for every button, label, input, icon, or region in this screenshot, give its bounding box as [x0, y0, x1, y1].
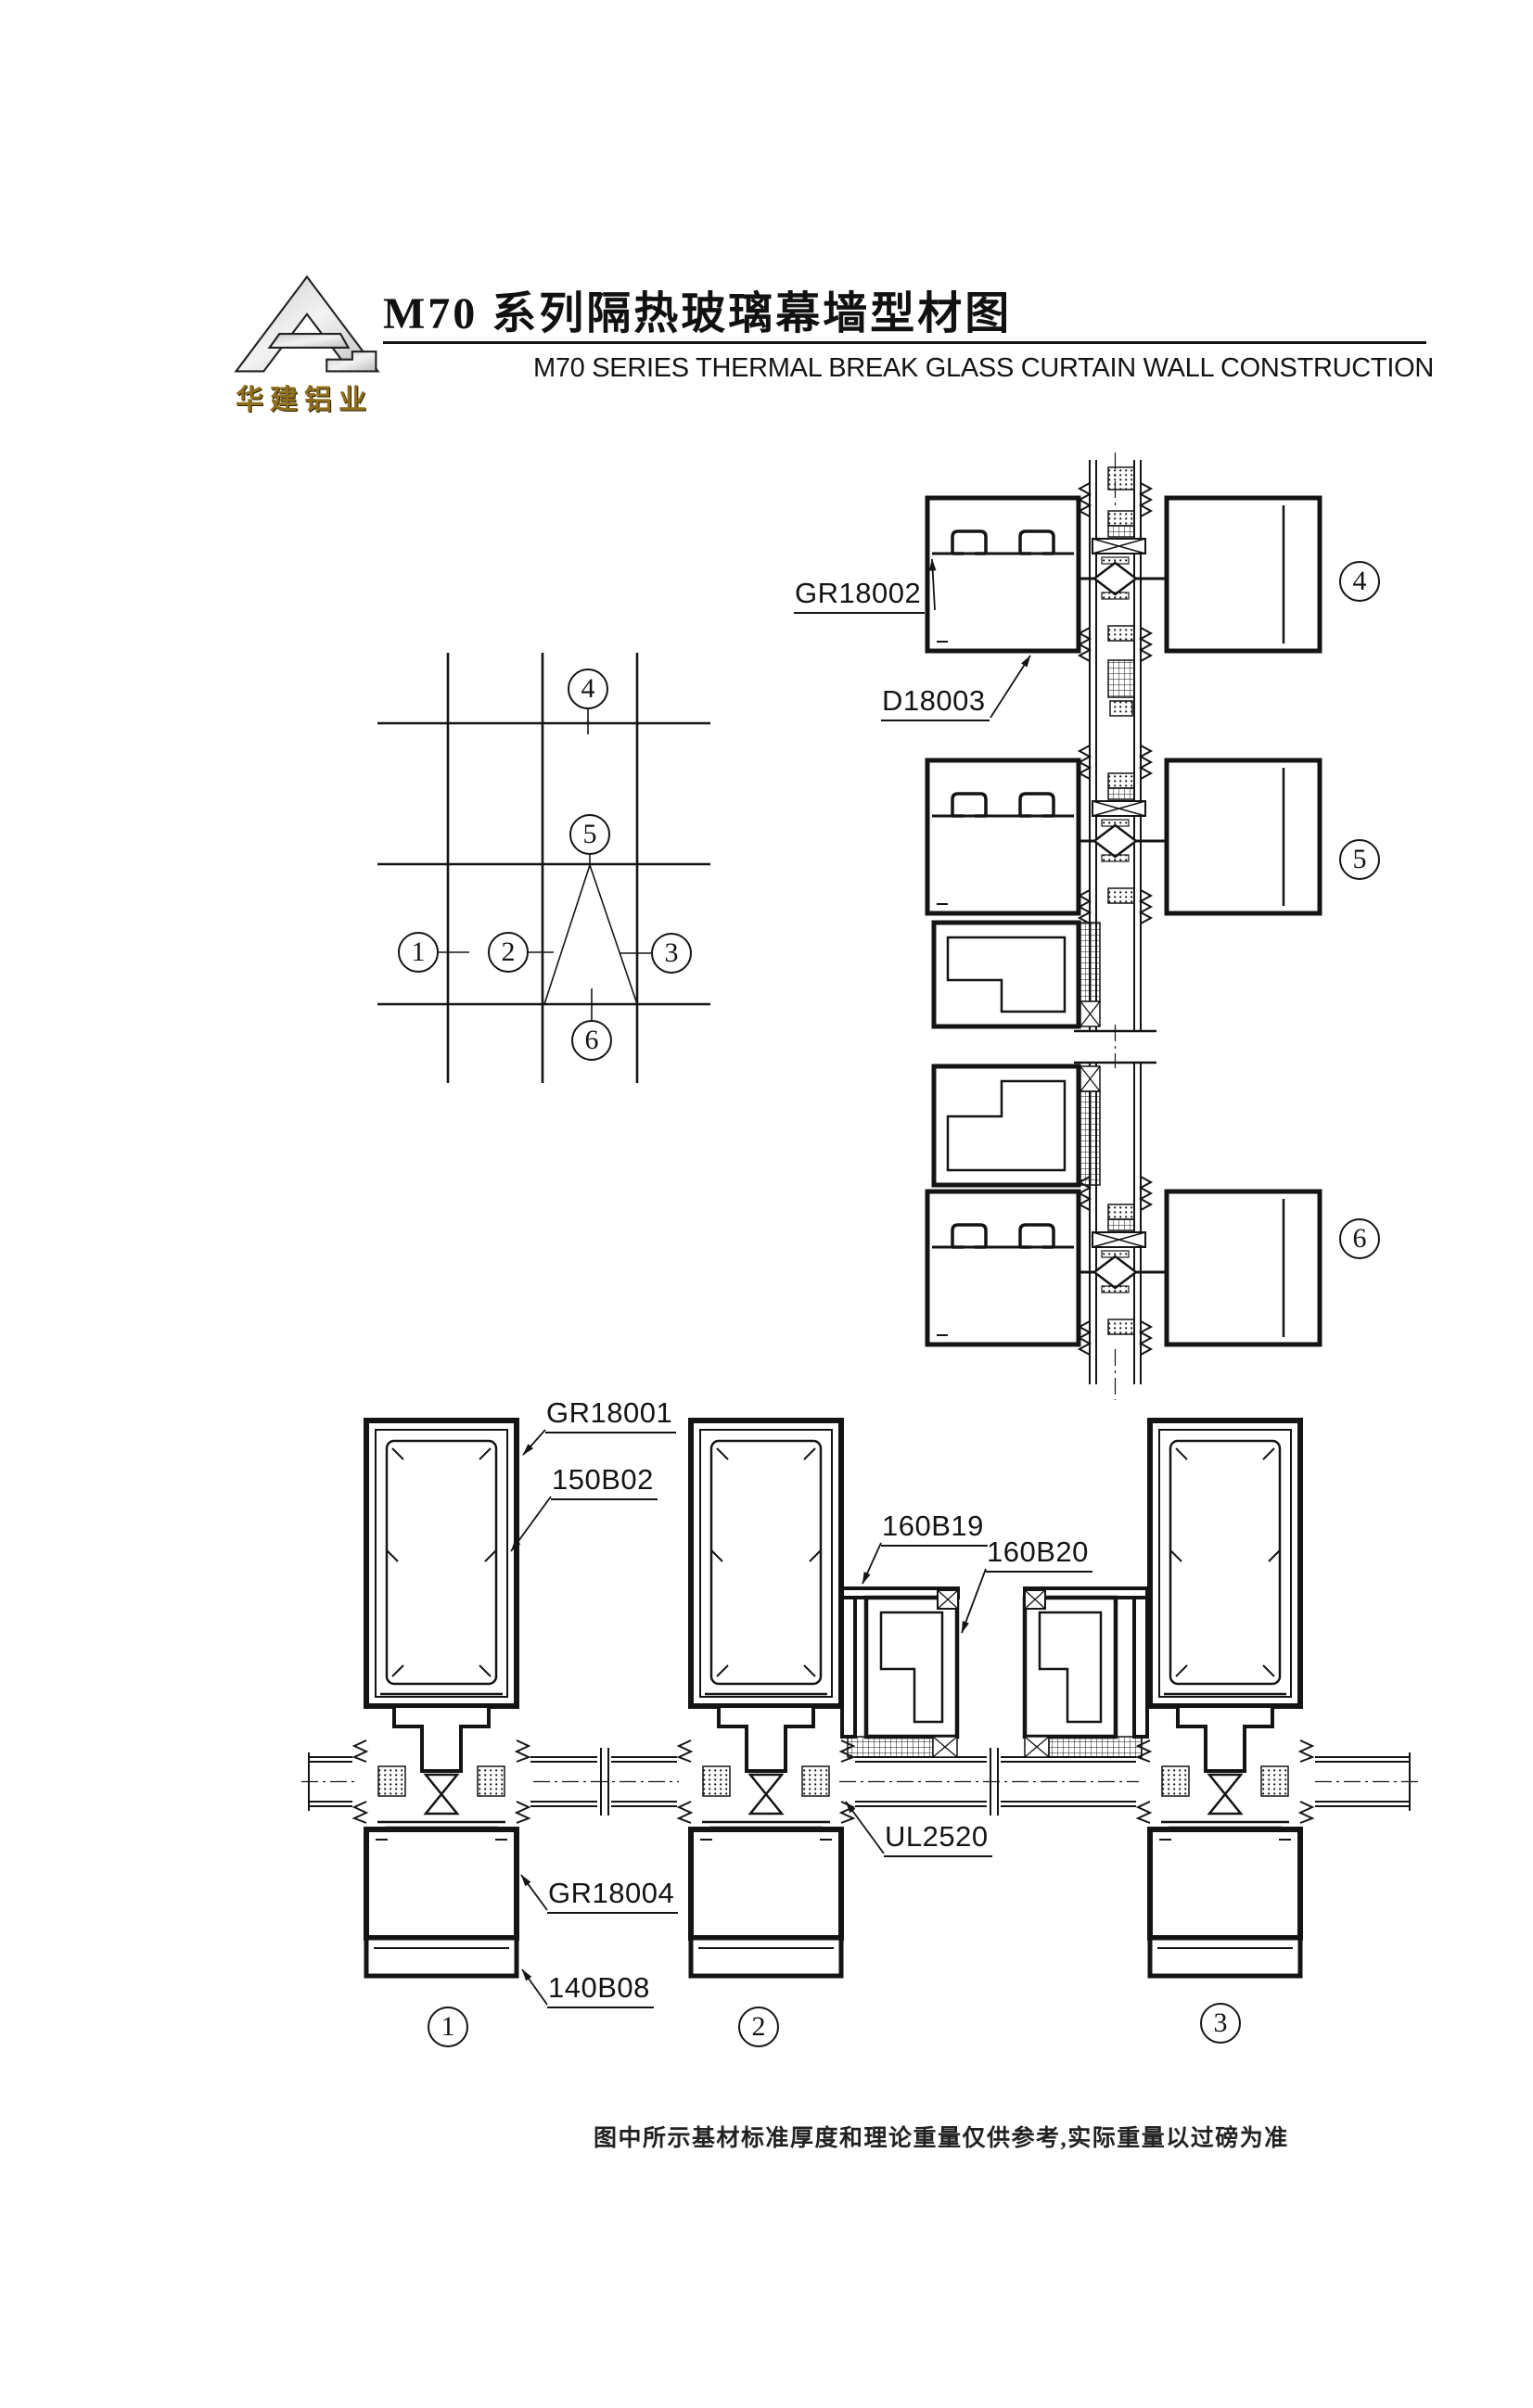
label-d18003: D18003 — [881, 686, 990, 721]
label-gr18004: GR18004 — [547, 1879, 678, 1914]
vertical-section-detail-4 — [927, 483, 1320, 661]
keyplan-marker-4: 4 — [568, 669, 608, 709]
vertical-vent-sashes — [934, 923, 1100, 1185]
footer-note: 图中所示基材标准厚度和理论重量仅供参考,实际重量以过磅为准 — [594, 2120, 1271, 2153]
section-marker-1: 1 — [428, 2007, 468, 2047]
keyplan-marker-2: 2 — [488, 932, 529, 973]
keyplan-marker-6: 6 — [571, 1020, 612, 1061]
label-150b02: 150B02 — [551, 1465, 658, 1500]
label-ul2520: UL2520 — [884, 1822, 992, 1857]
horizontal-section-detail-3 — [1138, 1421, 1312, 1976]
keyplan-marker-5: 5 — [569, 814, 610, 855]
label-160b20: 160B20 — [986, 1537, 1092, 1573]
vertical-sections-drawing — [927, 452, 1320, 1400]
key-plan-diagram — [377, 653, 710, 1083]
horizontal-sections-drawing — [301, 1421, 1421, 1976]
profile-sections-drawing — [0, 0, 1533, 2408]
horizontal-section-detail-1 — [354, 1421, 529, 1976]
section-marker-3: 3 — [1200, 2003, 1241, 2044]
label-gr18002: GR18002 — [794, 579, 925, 614]
label-160b19: 160B19 — [881, 1511, 988, 1547]
horizontal-section-detail-2 — [679, 1421, 853, 1976]
section-marker-4: 4 — [1339, 561, 1380, 602]
section-marker-5: 5 — [1339, 839, 1380, 880]
keyplan-marker-1: 1 — [398, 932, 439, 973]
vent-opening-triangle — [544, 865, 637, 1004]
label-140b08: 140B08 — [547, 1973, 654, 2008]
keyplan-marker-3: 3 — [651, 933, 692, 974]
vertical-section-detail-5 — [927, 745, 1320, 924]
section-marker-2: 2 — [738, 2007, 779, 2047]
section-marker-6: 6 — [1339, 1218, 1380, 1259]
vertical-section-detail-6 — [927, 1177, 1320, 1355]
horizontal-vent-sashes — [842, 1588, 1147, 1757]
label-gr18001: GR18001 — [545, 1398, 676, 1433]
drawing-sheet: 华建铝业 M70 系列隔热玻璃幕墙型材图 M70 SERIES THERMAL … — [0, 0, 1533, 2408]
